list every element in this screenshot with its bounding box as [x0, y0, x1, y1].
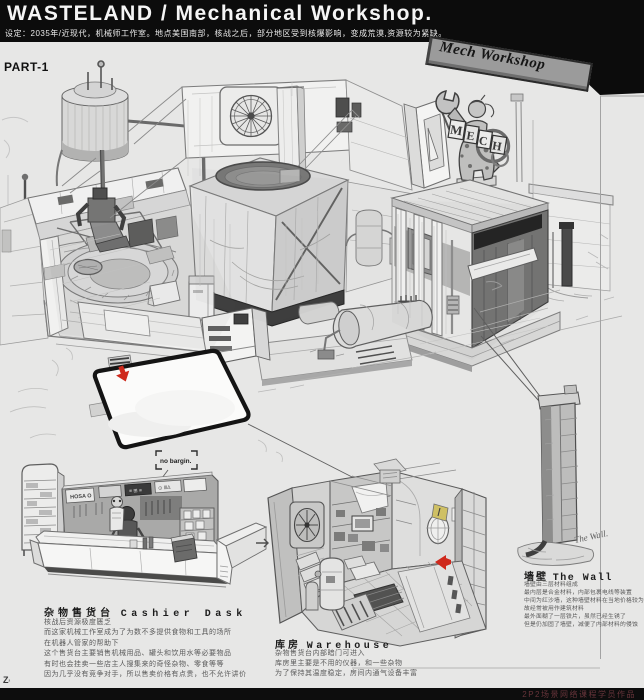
svg-text:⊙ ⅢΔ: ⊙ ⅢΔ: [158, 485, 171, 492]
svg-text:M: M: [449, 122, 463, 139]
svg-text:The Wall.: The Wall.: [573, 528, 609, 545]
svg-text:no bargin.: no bargin.: [160, 458, 192, 465]
svg-text:≡ ⊞ ≡: ≡ ⊞ ≡: [129, 488, 142, 495]
